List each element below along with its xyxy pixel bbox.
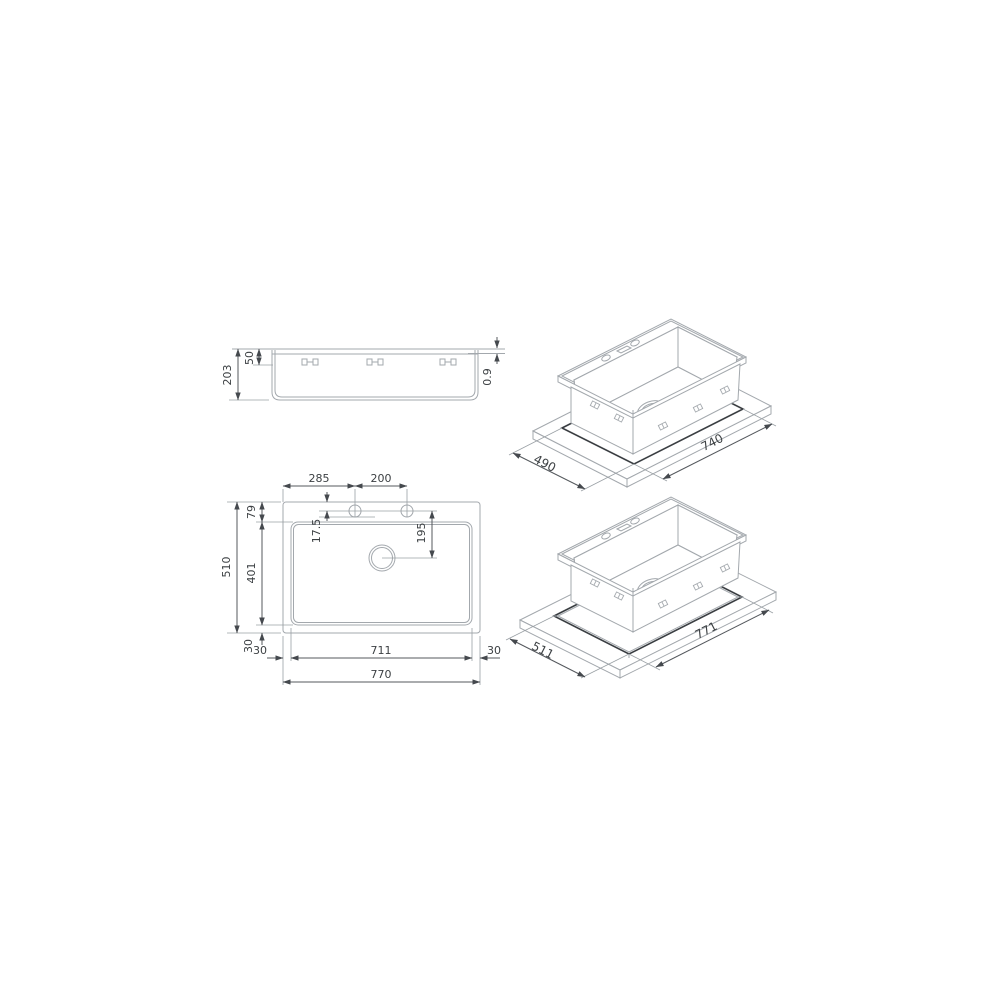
side-view: 203 50 0.9 — [205, 320, 515, 432]
mounting-clips — [302, 359, 456, 365]
dim-label: 203 — [221, 365, 234, 386]
clip-icon — [302, 359, 318, 365]
dim-label: 195 — [415, 523, 428, 544]
dim-hole-spacing: 200 — [355, 472, 407, 486]
dim-label: 285 — [309, 472, 330, 485]
dim-label: 401 — [245, 563, 258, 584]
dim-label: 30 — [253, 644, 267, 657]
dim-label: 510 — [220, 557, 233, 578]
dim-label: 50 — [243, 351, 256, 365]
clip-icon — [367, 359, 383, 365]
dim-hole-offset-left: 285 — [283, 472, 355, 486]
dim-label: 17.5 — [310, 519, 323, 544]
dim-rim-to-clip: 50 — [243, 349, 273, 365]
sink-side-outline — [232, 349, 505, 400]
dim-label: 711 — [371, 644, 392, 657]
dim-label: 79 — [245, 505, 258, 519]
dim-rim-to-bowl-top: 79 — [245, 502, 262, 522]
dim-drain-offset: 195 — [415, 511, 432, 558]
dim-bowl-depth: 401 — [245, 522, 262, 625]
dim-label: 200 — [371, 472, 392, 485]
clip-icon — [440, 359, 456, 365]
dim-overall-depth: 510 — [220, 502, 237, 633]
plan-view: 285 200 79 510 401 30 — [215, 465, 515, 700]
technical-drawing-canvas: 203 50 0.9 — [0, 0, 1000, 1000]
flushmount-cutout-view: 511 771 — [495, 468, 865, 708]
dim-label: 0.9 — [481, 368, 494, 386]
dim-bowl-width: 711 — [291, 644, 472, 658]
dim-overall-width: 770 — [283, 668, 480, 682]
dim-label: 770 — [371, 668, 392, 681]
dim-bowl-margin-left: 30 — [253, 644, 283, 658]
dim-hole-detail: 17.5 — [310, 492, 327, 543]
